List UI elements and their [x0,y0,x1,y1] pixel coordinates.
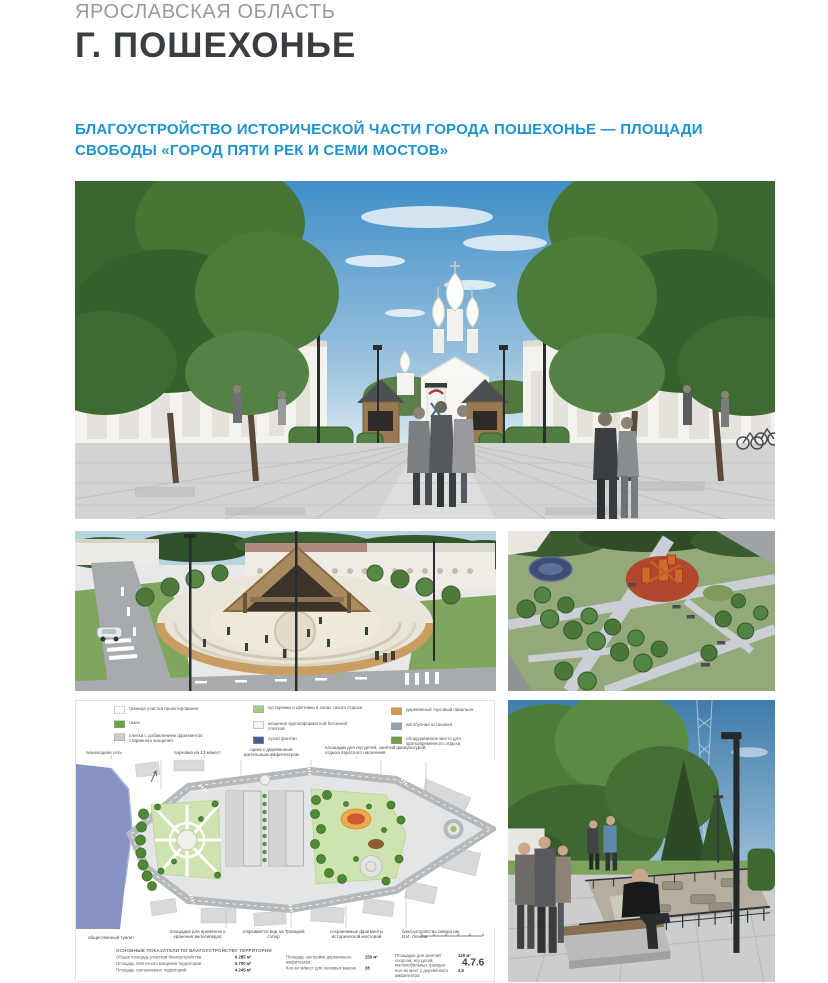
legend-swatch-tile [114,734,125,742]
park-path-render-image [508,700,775,982]
indicator-row: Кол-во м/мест для легковых машин 28 [286,966,386,971]
project-subtitle-line1: БЛАГОУСТРОЙСТВО ИСТОРИЧЕСКОЙ ЧАСТИ ГОРОД… [75,119,781,140]
legend-swatch-boundary [114,707,125,715]
legend-item: сухой фонтан [253,736,297,744]
plan-callout: открывается вид на Троицкий собор [241,929,306,939]
legend-swatch-busstop [391,723,402,731]
legend-item: деревянный торговый павильон [391,707,473,715]
main-square-render-image [75,181,775,519]
plan-callout: парковка на 13 м/мест [174,750,239,755]
legend-item: автобусная остановка [391,722,452,730]
legend-item: газон [114,720,140,728]
scale-bar [420,932,485,939]
right-park [311,789,407,885]
plan-callout: площадки для игр детей, занятий физкульт… [325,745,430,755]
plan-callout: пешеходная сеть [86,750,141,755]
plan-callout: площадка для временного хранения велосип… [160,929,235,939]
document-page: ЯРОСЛАВСКАЯ ОБЛАСТЬ Г. ПОШЕХОНЬЕ БЛАГОУС… [0,0,828,982]
masterplan-drawing [76,759,496,929]
playground-render-image [508,531,775,691]
amphitheater-render-image [75,531,496,691]
indicator-row: Площадь озеленяемых территорий 4 245 м² [116,968,266,973]
legend-item: плитка с добавлением фрагментов старинно… [114,733,224,743]
indicator-row: Площадь застройки деревянного амфитеатра… [286,955,386,965]
page-number: 4.7.6 [462,957,484,969]
legend-item: граница участка проектирования [114,706,198,714]
legend-swatch-photo [391,737,402,745]
legend-item: мощение крупноформатной бетонной плиткой [253,721,363,731]
indicator-row: Кол-во мест у деревянного амфитеатра 4,6 [395,969,475,979]
pool [529,557,572,581]
masterplan-figure: граница участка проектирования газон пли… [75,700,495,982]
legend-swatch-pavilion [391,708,402,716]
legend-item: кустарники и цветники в зонах тихого отд… [253,705,362,713]
project-subtitle-line2: СВОБОДЫ «ГОРОД ПЯТИ РЕК И СЕМИ МОСТОВ» [75,140,781,161]
indicator-row: Площадь плиточного мощения территории 5 … [116,962,266,967]
legend-swatch-fountain [253,737,264,745]
indicators-heading: ОСНОВНЫЕ ПОКАЗАТЕЛИ ПО БЛАГОУСТРОЙСТВУ Т… [116,948,272,953]
legend-swatch-lawn [114,721,125,729]
region-label: ЯРОСЛАВСКАЯ ОБЛАСТЬ [75,1,335,24]
green-pad [703,585,733,601]
plan-callout: сцена с деревянным зрительным амфитеатро… [241,747,301,757]
roundabout [446,821,462,837]
plan-callout: общественный туалет [88,935,143,940]
page-title: Г. ПОШЕХОНЬЕ [75,26,356,66]
plan-callout: сохраняемые фрагменты исторической мосто… [319,929,394,939]
hedge [748,849,775,891]
legend-swatch-shrub [253,706,264,714]
project-subtitle: БЛАГОУСТРОЙСТВО ИСТОРИЧЕСКОЙ ЧАСТИ ГОРОД… [75,119,781,161]
indicator-row: Общая площадь участков благоустройства 6… [116,955,266,960]
people-group [515,836,571,952]
legend-swatch-bigtile [253,722,264,730]
